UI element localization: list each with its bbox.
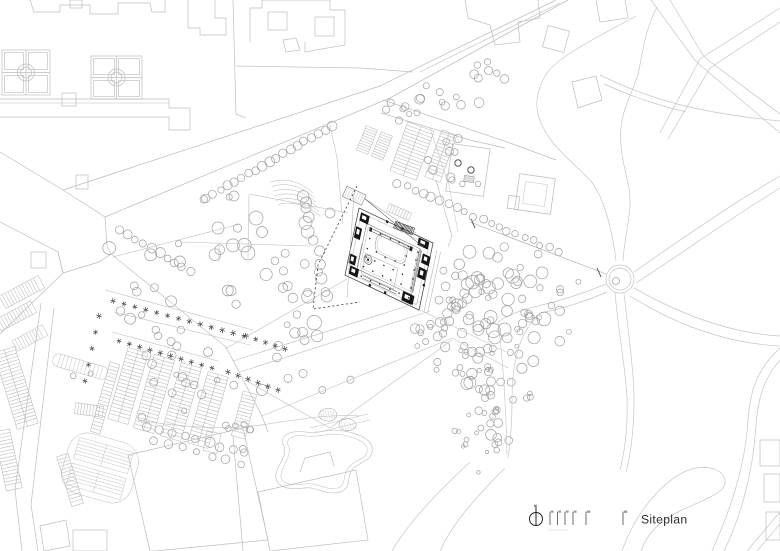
- svg-text:N: N: [534, 504, 537, 509]
- svg-text:Siteplan: Siteplan: [641, 513, 687, 527]
